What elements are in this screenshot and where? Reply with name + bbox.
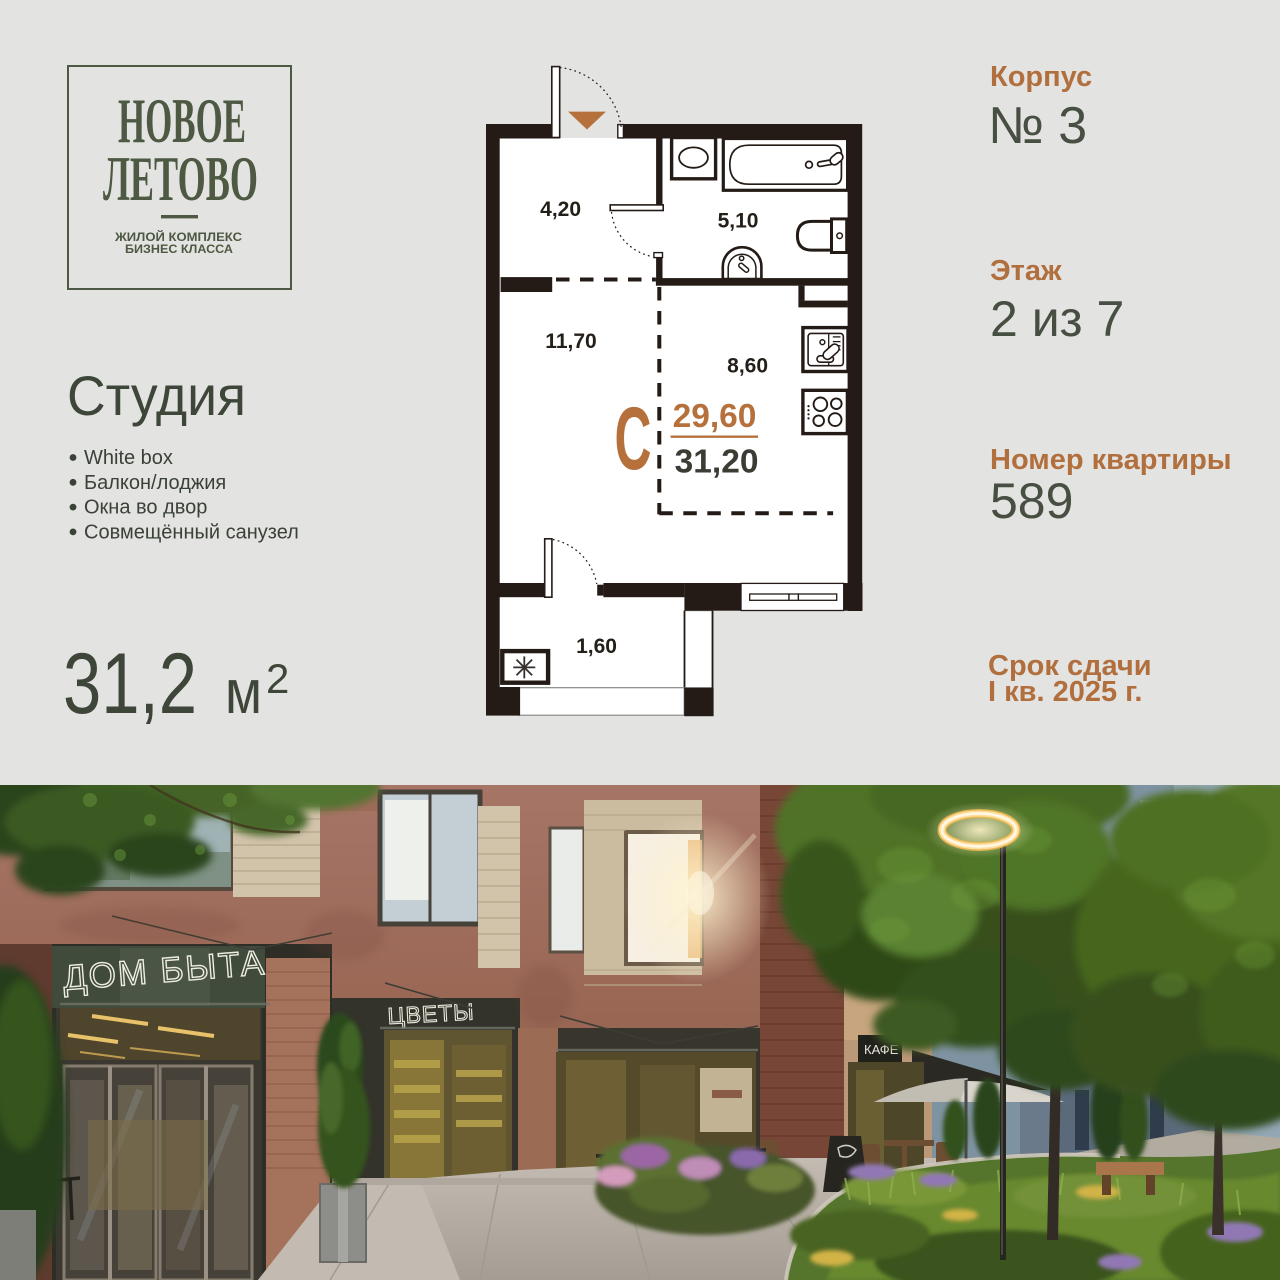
svg-text:White box: White box bbox=[84, 447, 173, 469]
svg-text:29,60: 29,60 bbox=[673, 398, 757, 435]
svg-text:5,10: 5,10 bbox=[718, 210, 759, 233]
svg-text:2: 2 bbox=[266, 655, 289, 702]
svg-text:31,2: 31,2 bbox=[63, 636, 197, 732]
svg-text:м: м bbox=[225, 658, 262, 727]
svg-text:1,60: 1,60 bbox=[576, 635, 617, 658]
svg-text:Совмещённый санузел: Совмещённый санузел bbox=[84, 522, 299, 544]
svg-text:Окна во двор: Окна во двор bbox=[84, 497, 207, 519]
svg-text:4,20: 4,20 bbox=[540, 198, 581, 221]
svg-text:С: С bbox=[615, 388, 652, 488]
svg-text:8,60: 8,60 bbox=[727, 355, 768, 378]
svg-text:11,70: 11,70 bbox=[545, 330, 596, 353]
svg-text:ЦВЕТЫ: ЦВЕТЫ bbox=[387, 998, 475, 1029]
svg-text:31,20: 31,20 bbox=[675, 443, 759, 480]
svg-text:Балкон/лоджия: Балкон/лоджия bbox=[84, 472, 226, 494]
svg-text:Студия: Студия bbox=[67, 364, 246, 427]
